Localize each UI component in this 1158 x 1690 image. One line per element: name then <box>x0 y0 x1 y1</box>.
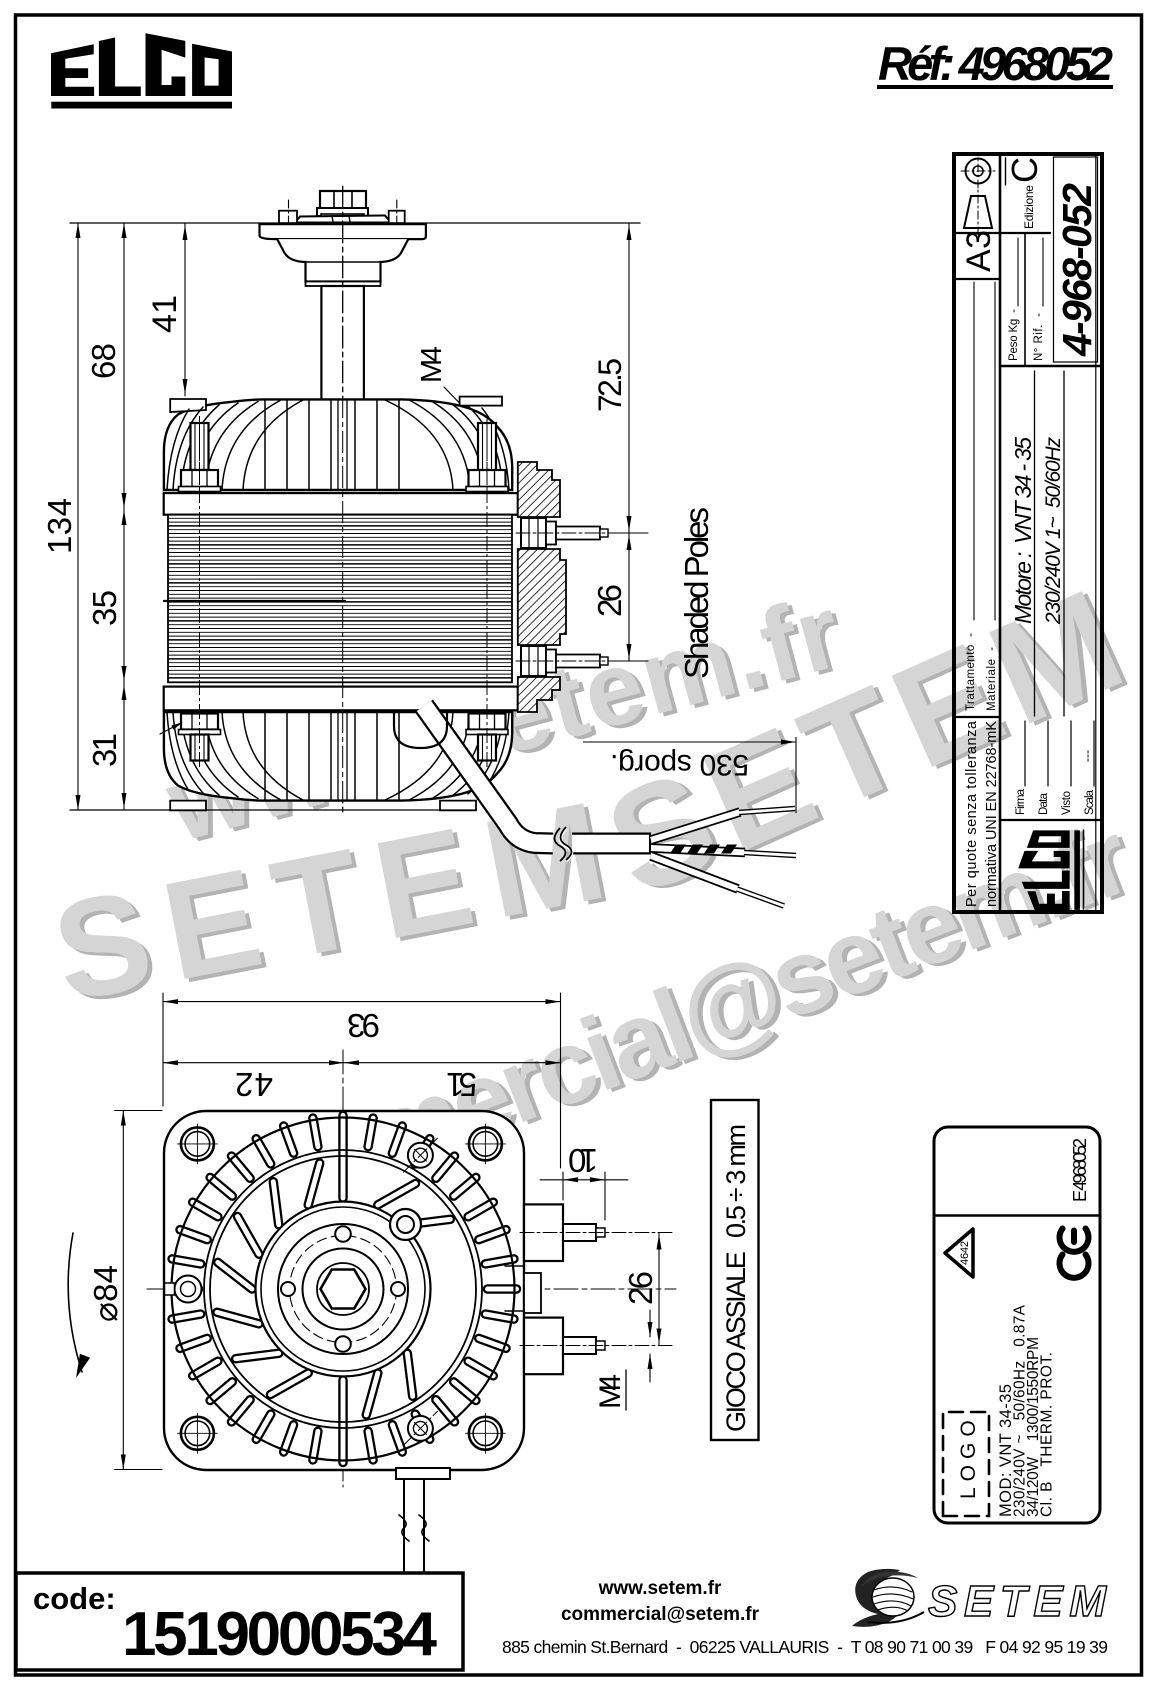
svg-text:93: 93 <box>347 1007 380 1044</box>
svg-text:31: 31 <box>86 733 123 767</box>
svg-text:26: 26 <box>591 584 628 617</box>
svg-text:N° Rif. -: N° Rif. - <box>1033 313 1045 361</box>
svg-text:Visto: Visto <box>1061 791 1073 815</box>
svg-text:SETEM: SETEM <box>928 1577 1108 1626</box>
svg-text:72.5: 72.5 <box>592 358 628 412</box>
svg-text:Per quote senza tolleranza: Per quote senza tolleranza <box>964 720 980 907</box>
svg-text:Trattamento -: Trattamento - <box>965 633 977 711</box>
svg-text:42: 42 <box>235 1066 273 1103</box>
svg-text:530 sporg.: 530 sporg. <box>610 748 749 781</box>
svg-text:1519000534: 1519000534 <box>122 1600 438 1669</box>
svg-text:⌀84: ⌀84 <box>87 1265 124 1322</box>
svg-text:Shaded Poles: Shaded Poles <box>678 507 715 679</box>
svg-text:35: 35 <box>86 590 123 626</box>
svg-text:885 chemin St.Bernard - 0622: 885 chemin St.Bernard - 06225 VALLAURIS … <box>502 1637 1108 1657</box>
svg-text:4-968-052: 4-968-052 <box>1054 183 1100 357</box>
svg-text:Edizione: Edizione <box>1022 185 1036 229</box>
svg-text:26: 26 <box>622 1271 659 1305</box>
svg-text:commercial@setem.fr: commercial@setem.fr <box>561 1604 760 1625</box>
svg-text:M4: M4 <box>594 1374 627 1409</box>
svg-text:Réf: 4968052: Réf: 4968052 <box>878 37 1113 90</box>
svg-text:10: 10 <box>568 1142 598 1179</box>
svg-text:GIOCO ASSIALE 0.5 ÷ 3 mm: GIOCO ASSIALE 0.5 ÷ 3 mm <box>721 1124 751 1432</box>
svg-text:Motore : VNT 34 - 35: Motore : VNT 34 - 35 <box>1010 437 1036 624</box>
svg-text:68: 68 <box>85 343 122 379</box>
svg-text:41: 41 <box>146 295 184 333</box>
svg-text:230/240V 1~ 50/60Hz: 230/240V 1~ 50/60Hz <box>1042 437 1065 626</box>
svg-text:Scala: Scala <box>1084 789 1096 815</box>
svg-text:www.setem.fr: www.setem.fr <box>598 1578 722 1599</box>
svg-text:M4: M4 <box>416 346 448 383</box>
svg-text:4642: 4642 <box>959 1241 971 1265</box>
svg-text:normativa UNI EN 22768-mK: normativa UNI EN 22768-mK <box>984 721 1000 907</box>
svg-text:Data: Data <box>1038 792 1050 815</box>
svg-text:Peso Kg -: Peso Kg - <box>1008 309 1020 361</box>
svg-text:code:: code: <box>33 1581 116 1616</box>
svg-text:C: C <box>1004 157 1045 183</box>
svg-text:Materiale -: Materiale - <box>986 647 998 711</box>
svg-text:LOGO: LOGO <box>957 1414 980 1499</box>
svg-text:Firma: Firma <box>1015 788 1027 815</box>
svg-text:E 4968052: E 4968052 <box>1070 1138 1090 1202</box>
svg-text:---: --- <box>1080 750 1094 762</box>
svg-text:134: 134 <box>41 498 78 554</box>
svg-text:51: 51 <box>446 1066 477 1103</box>
svg-text:A 3: A 3 <box>960 230 998 272</box>
svg-text:Cl. B THERM. PROT.: Cl. B THERM. PROT. <box>1039 1352 1056 1517</box>
